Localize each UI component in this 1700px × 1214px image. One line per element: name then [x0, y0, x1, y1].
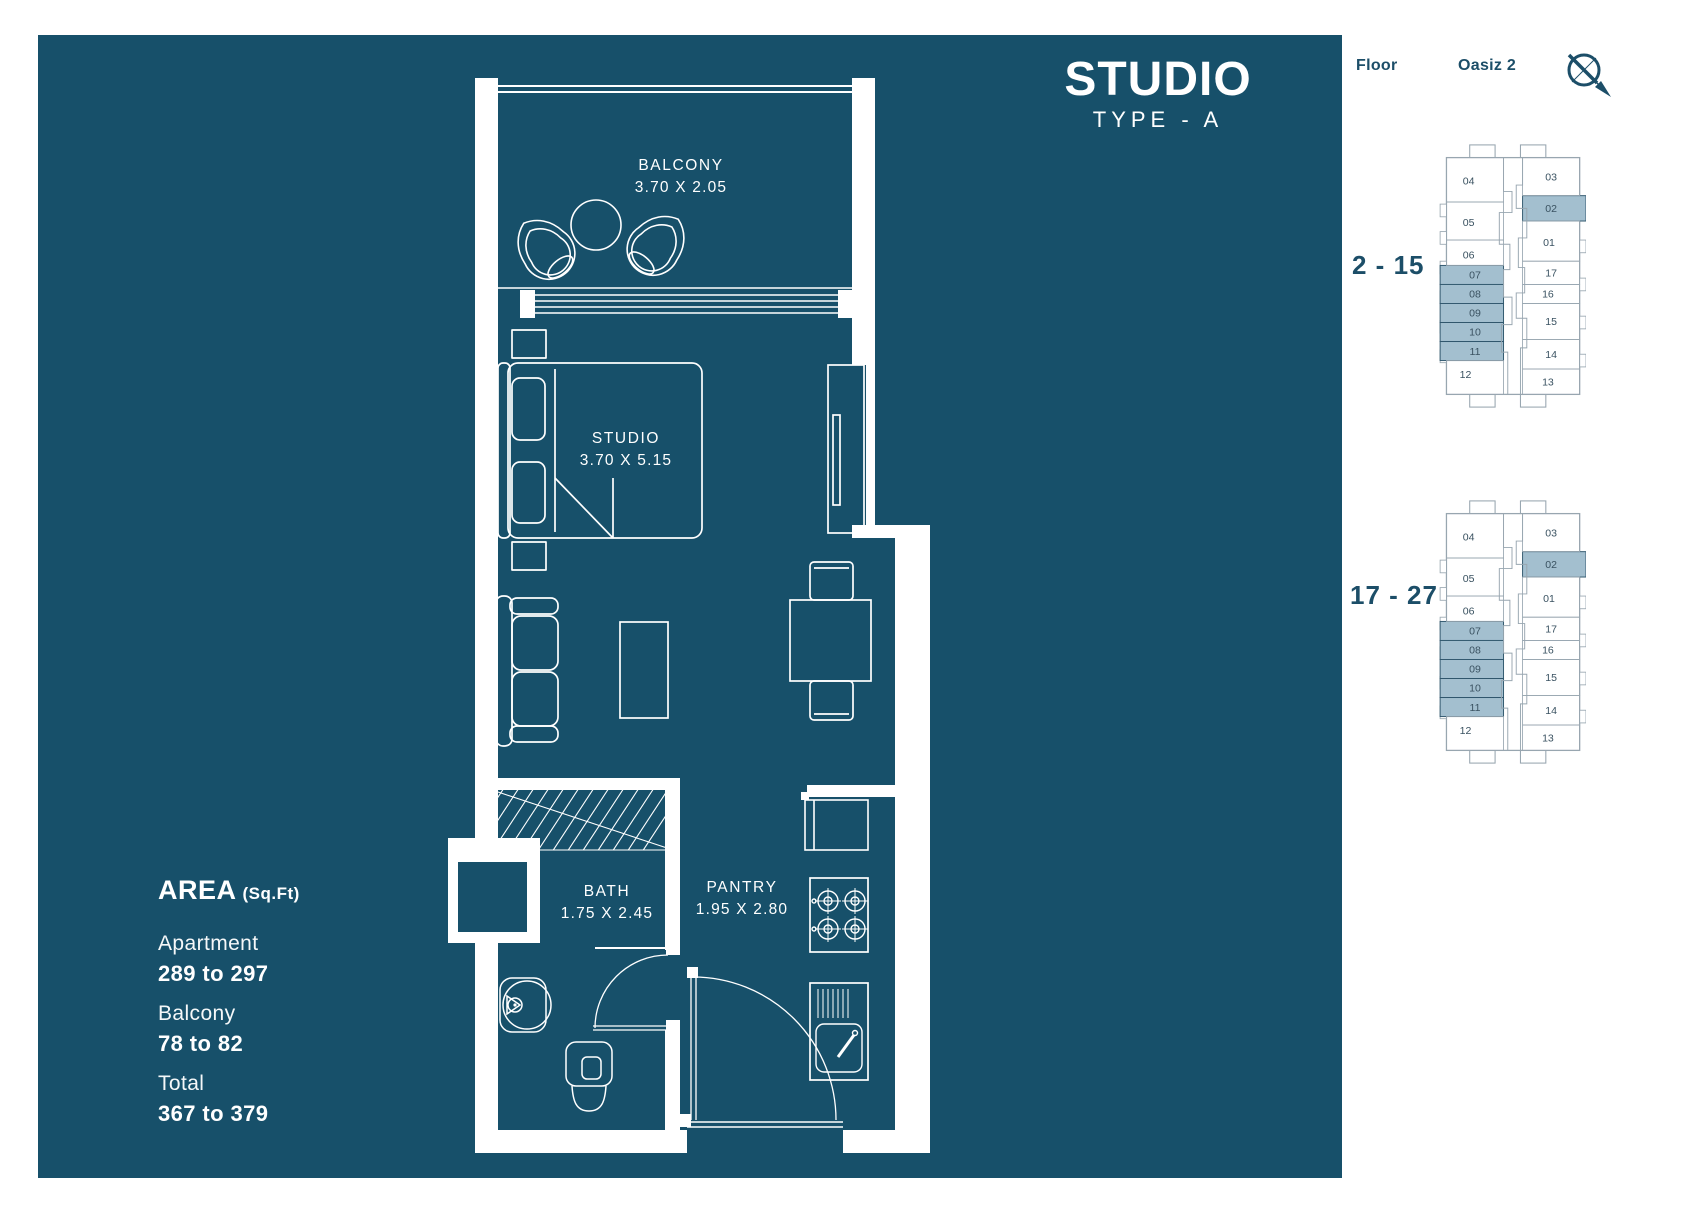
floor-key-panel: Floor Oasiz 2 2 - 15 0405060708091011120… [1342, 0, 1700, 1214]
floor-key-map-1: 0405060708091011120302011716151413 [1438, 120, 1586, 432]
unit-type-title: STUDIO TYPE - A [1038, 55, 1278, 133]
balcony-railing [498, 86, 875, 92]
unit-01-label: 01 [1543, 237, 1555, 249]
unit-04-label: 04 [1463, 532, 1475, 544]
fridge [805, 800, 868, 850]
floor-range-2: 17 - 27 [1350, 580, 1438, 611]
north-arrow-icon [1554, 40, 1624, 110]
washbasin [500, 978, 551, 1032]
unit-03-label: 03 [1545, 171, 1557, 183]
area-row-label: Balcony [158, 1002, 478, 1026]
unit-07-label: 07 [1469, 626, 1481, 638]
area-unit-label: (Sq.Ft) [243, 884, 300, 903]
area-row-label: Total [158, 1072, 478, 1096]
pantry-label: PANTRY 1.95 X 2.80 [632, 877, 852, 921]
balcony-table [571, 200, 621, 250]
balcony-label: BALCONY 3.70 X 2.05 [571, 155, 791, 199]
sofa [496, 596, 558, 746]
unit-16-label: 16 [1542, 289, 1554, 301]
unit-12-label: 12 [1460, 369, 1472, 381]
studio-label: STUDIO 3.70 X 5.15 [516, 428, 736, 472]
page-title: STUDIO [1038, 55, 1278, 105]
kitchen-sink [810, 983, 868, 1080]
unit-15-label: 15 [1545, 672, 1557, 684]
area-row-apartment: Apartment 289 to 297 [158, 932, 478, 987]
area-row-balcony: Balcony 78 to 82 [158, 1002, 478, 1057]
unit-08-label: 08 [1469, 645, 1481, 657]
building-name-header: Oasiz 2 [1458, 57, 1516, 75]
pantry-name: PANTRY [632, 877, 852, 899]
unit-11-label: 11 [1470, 346, 1481, 358]
floorplan-panel: BALCONY 3.70 X 2.05 STUDIO 3.70 X 5.15 B… [38, 35, 1342, 1178]
unit-07-label: 07 [1469, 270, 1481, 282]
unit-06-label: 06 [1463, 606, 1475, 618]
coffee-table [620, 622, 668, 718]
balcony-dims: 3.70 X 2.05 [571, 177, 791, 199]
unit-14-label: 14 [1545, 705, 1557, 717]
unit-06-label: 06 [1463, 250, 1475, 262]
area-row-label: Apartment [158, 932, 478, 956]
unit-13-label: 13 [1542, 376, 1554, 388]
unit-09-label: 09 [1469, 308, 1481, 320]
area-heading-text: AREA [158, 875, 237, 905]
unit-10-label: 10 [1469, 683, 1481, 695]
sliding-door [498, 288, 853, 318]
unit-17-label: 17 [1545, 624, 1557, 636]
area-row-value: 78 to 82 [158, 1031, 478, 1057]
page-subtitle: TYPE - A [1038, 107, 1278, 133]
floor-range-1: 2 - 15 [1352, 250, 1425, 281]
unit-04-label: 04 [1463, 176, 1475, 188]
unit-15-label: 15 [1545, 316, 1557, 328]
unit-05-label: 05 [1463, 217, 1475, 229]
unit-10-label: 10 [1469, 327, 1481, 339]
unit-01-label: 01 [1543, 593, 1555, 605]
unit-02-label: 02 [1545, 559, 1557, 571]
area-row-value: 289 to 297 [158, 961, 478, 987]
pantry-dims: 1.95 X 2.80 [632, 899, 852, 921]
balcony-chair-left [504, 207, 586, 290]
unit-17-label: 17 [1545, 268, 1557, 280]
unit-16-label: 16 [1542, 645, 1554, 657]
toilet [566, 1042, 612, 1111]
unit-03-label: 03 [1545, 527, 1557, 539]
studio-dims: 3.70 X 5.15 [516, 450, 736, 472]
unit-02-label: 02 [1545, 203, 1557, 215]
area-row-value: 367 to 379 [158, 1101, 478, 1127]
unit-12-label: 12 [1460, 725, 1472, 737]
balcony-name: BALCONY [571, 155, 791, 177]
area-heading: AREA(Sq.Ft) [158, 875, 478, 906]
floor-key-map-2: 0405060708091011120302011716151413 [1438, 476, 1586, 788]
balcony-chair-right [616, 203, 698, 286]
unit-11-label: 11 [1470, 702, 1481, 714]
unit-05-label: 05 [1463, 573, 1475, 585]
unit-14-label: 14 [1545, 349, 1557, 361]
studio-name: STUDIO [516, 428, 736, 450]
area-summary: AREA(Sq.Ft) Apartment 289 to 297 Balcony… [158, 875, 478, 1142]
area-row-total: Total 367 to 379 [158, 1072, 478, 1127]
unit-13-label: 13 [1542, 732, 1554, 744]
dining-set [790, 562, 871, 720]
wardrobe [828, 365, 864, 533]
unit-09-label: 09 [1469, 664, 1481, 676]
floor-column-header: Floor [1356, 57, 1398, 75]
unit-08-label: 08 [1469, 289, 1481, 301]
